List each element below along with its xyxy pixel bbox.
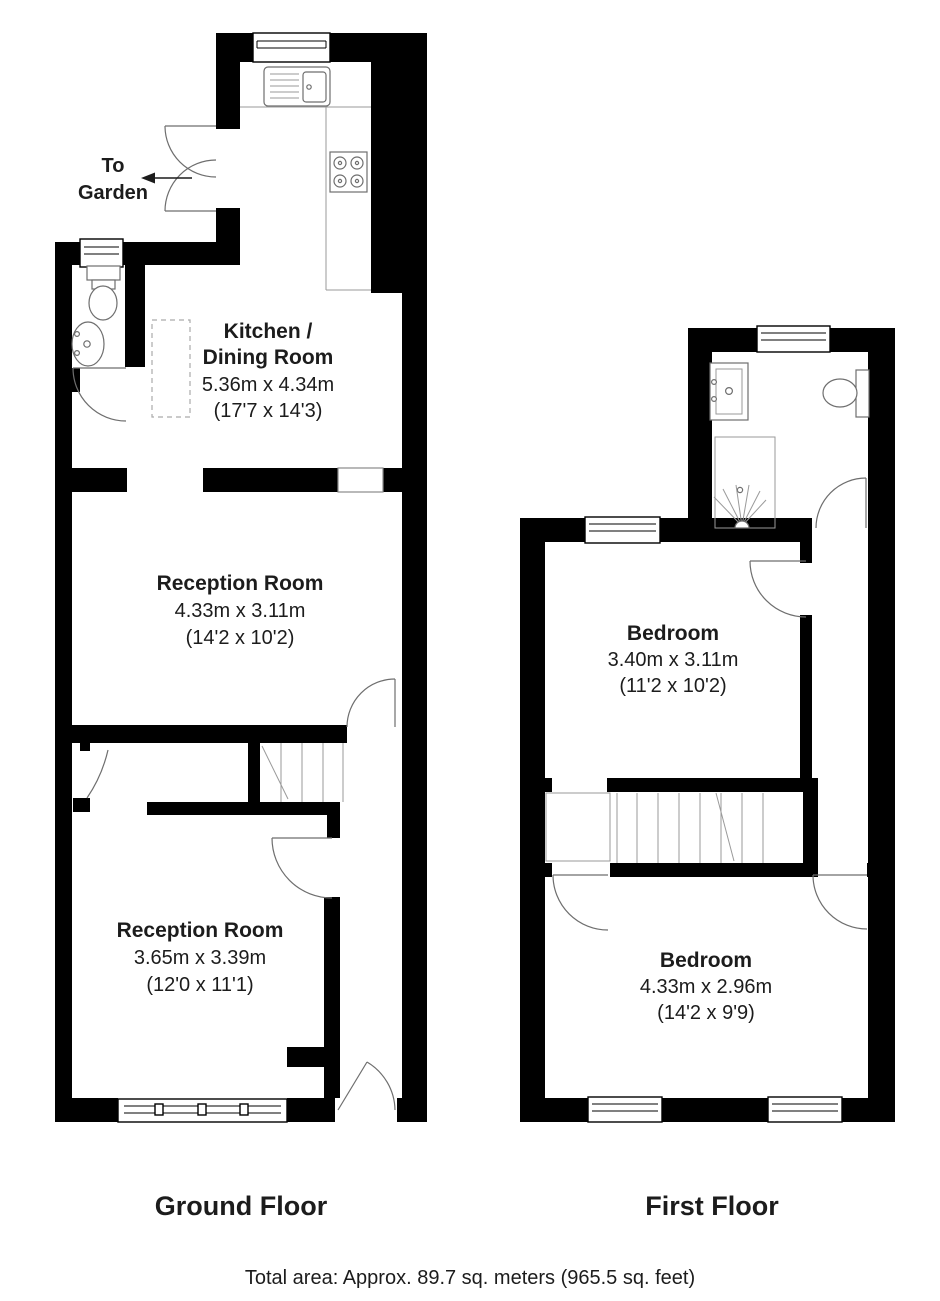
front-door: [338, 1062, 395, 1110]
kitchen-window: [253, 33, 330, 62]
first-floor-title: First Floor: [645, 1191, 779, 1221]
hob-icon: [330, 152, 367, 192]
garden-arrow-icon: [141, 173, 192, 184]
wc-toilet: [87, 266, 120, 320]
bedroom2-dim-imperial: (14'2 x 9'9): [657, 1002, 755, 1024]
ground-floor-title: Ground Floor: [155, 1191, 328, 1221]
bedroom1-window: [585, 517, 660, 543]
garden-label-line1: To: [102, 155, 125, 177]
garden-label-line2: Garden: [78, 182, 148, 204]
hallway-door: [272, 838, 332, 898]
garden-double-door: [165, 126, 216, 211]
bedroom1-name: Bedroom: [627, 622, 719, 645]
kitchen-name-line1: Kitchen /: [224, 320, 313, 343]
bedroom2-door: [813, 875, 867, 929]
bathroom-toilet: [823, 370, 869, 417]
bedroom1-door: [750, 561, 806, 617]
wc-door: [73, 368, 126, 421]
bathroom-sink: [710, 363, 748, 420]
kitchen-dim-metric: 5.36m x 4.34m: [202, 374, 334, 396]
bedroom1-dim-imperial: (11'2 x 10'2): [619, 675, 726, 697]
reception1-name: Reception Room: [157, 572, 324, 595]
kitchen-dim-imperial: (17'7 x 14'3): [214, 400, 323, 422]
wc-window: [80, 239, 123, 267]
bedroom2-window-left: [588, 1097, 662, 1122]
shower: [714, 437, 775, 528]
bedroom2-name: Bedroom: [660, 949, 752, 972]
landing-closet-door: [553, 875, 608, 930]
floorplan-page: To Garden Kitchen / Dining Room 5.36m x …: [0, 0, 940, 1301]
reception1-dim-imperial: (14'2 x 10'2): [186, 627, 295, 649]
bedroom1-dim-metric: 3.40m x 3.11m: [608, 649, 739, 671]
bay-window: [118, 1099, 287, 1122]
reception2-dim-imperial: (12'0 x 11'1): [146, 974, 253, 996]
reception2-dim-metric: 3.65m x 3.39m: [134, 947, 266, 969]
ground-floor-stairs: [262, 743, 343, 802]
reception1-door: [347, 679, 395, 727]
reception-divider-door: [87, 750, 108, 798]
reception2-name: Reception Room: [117, 919, 284, 942]
first-floor-stairs: [546, 793, 763, 863]
bathroom-door: [816, 478, 866, 528]
reception1-dim-metric: 4.33m x 3.11m: [175, 600, 306, 622]
bedroom2-window-right: [768, 1097, 842, 1122]
dining-table-dashed: [152, 320, 190, 417]
kitchen-name-line2: Dining Room: [203, 346, 334, 369]
bathroom-window: [757, 326, 830, 352]
bedroom2-dim-metric: 4.33m x 2.96m: [640, 976, 772, 998]
kitchen-sink: [264, 67, 330, 106]
total-area-label: Total area: Approx. 89.7 sq. meters (965…: [245, 1267, 695, 1289]
kitchen-counter: [240, 107, 371, 290]
internal-hatch: [338, 468, 383, 492]
wc-basin: [72, 322, 104, 366]
floorplan-drawing: To Garden Kitchen / Dining Room 5.36m x …: [0, 0, 940, 1301]
